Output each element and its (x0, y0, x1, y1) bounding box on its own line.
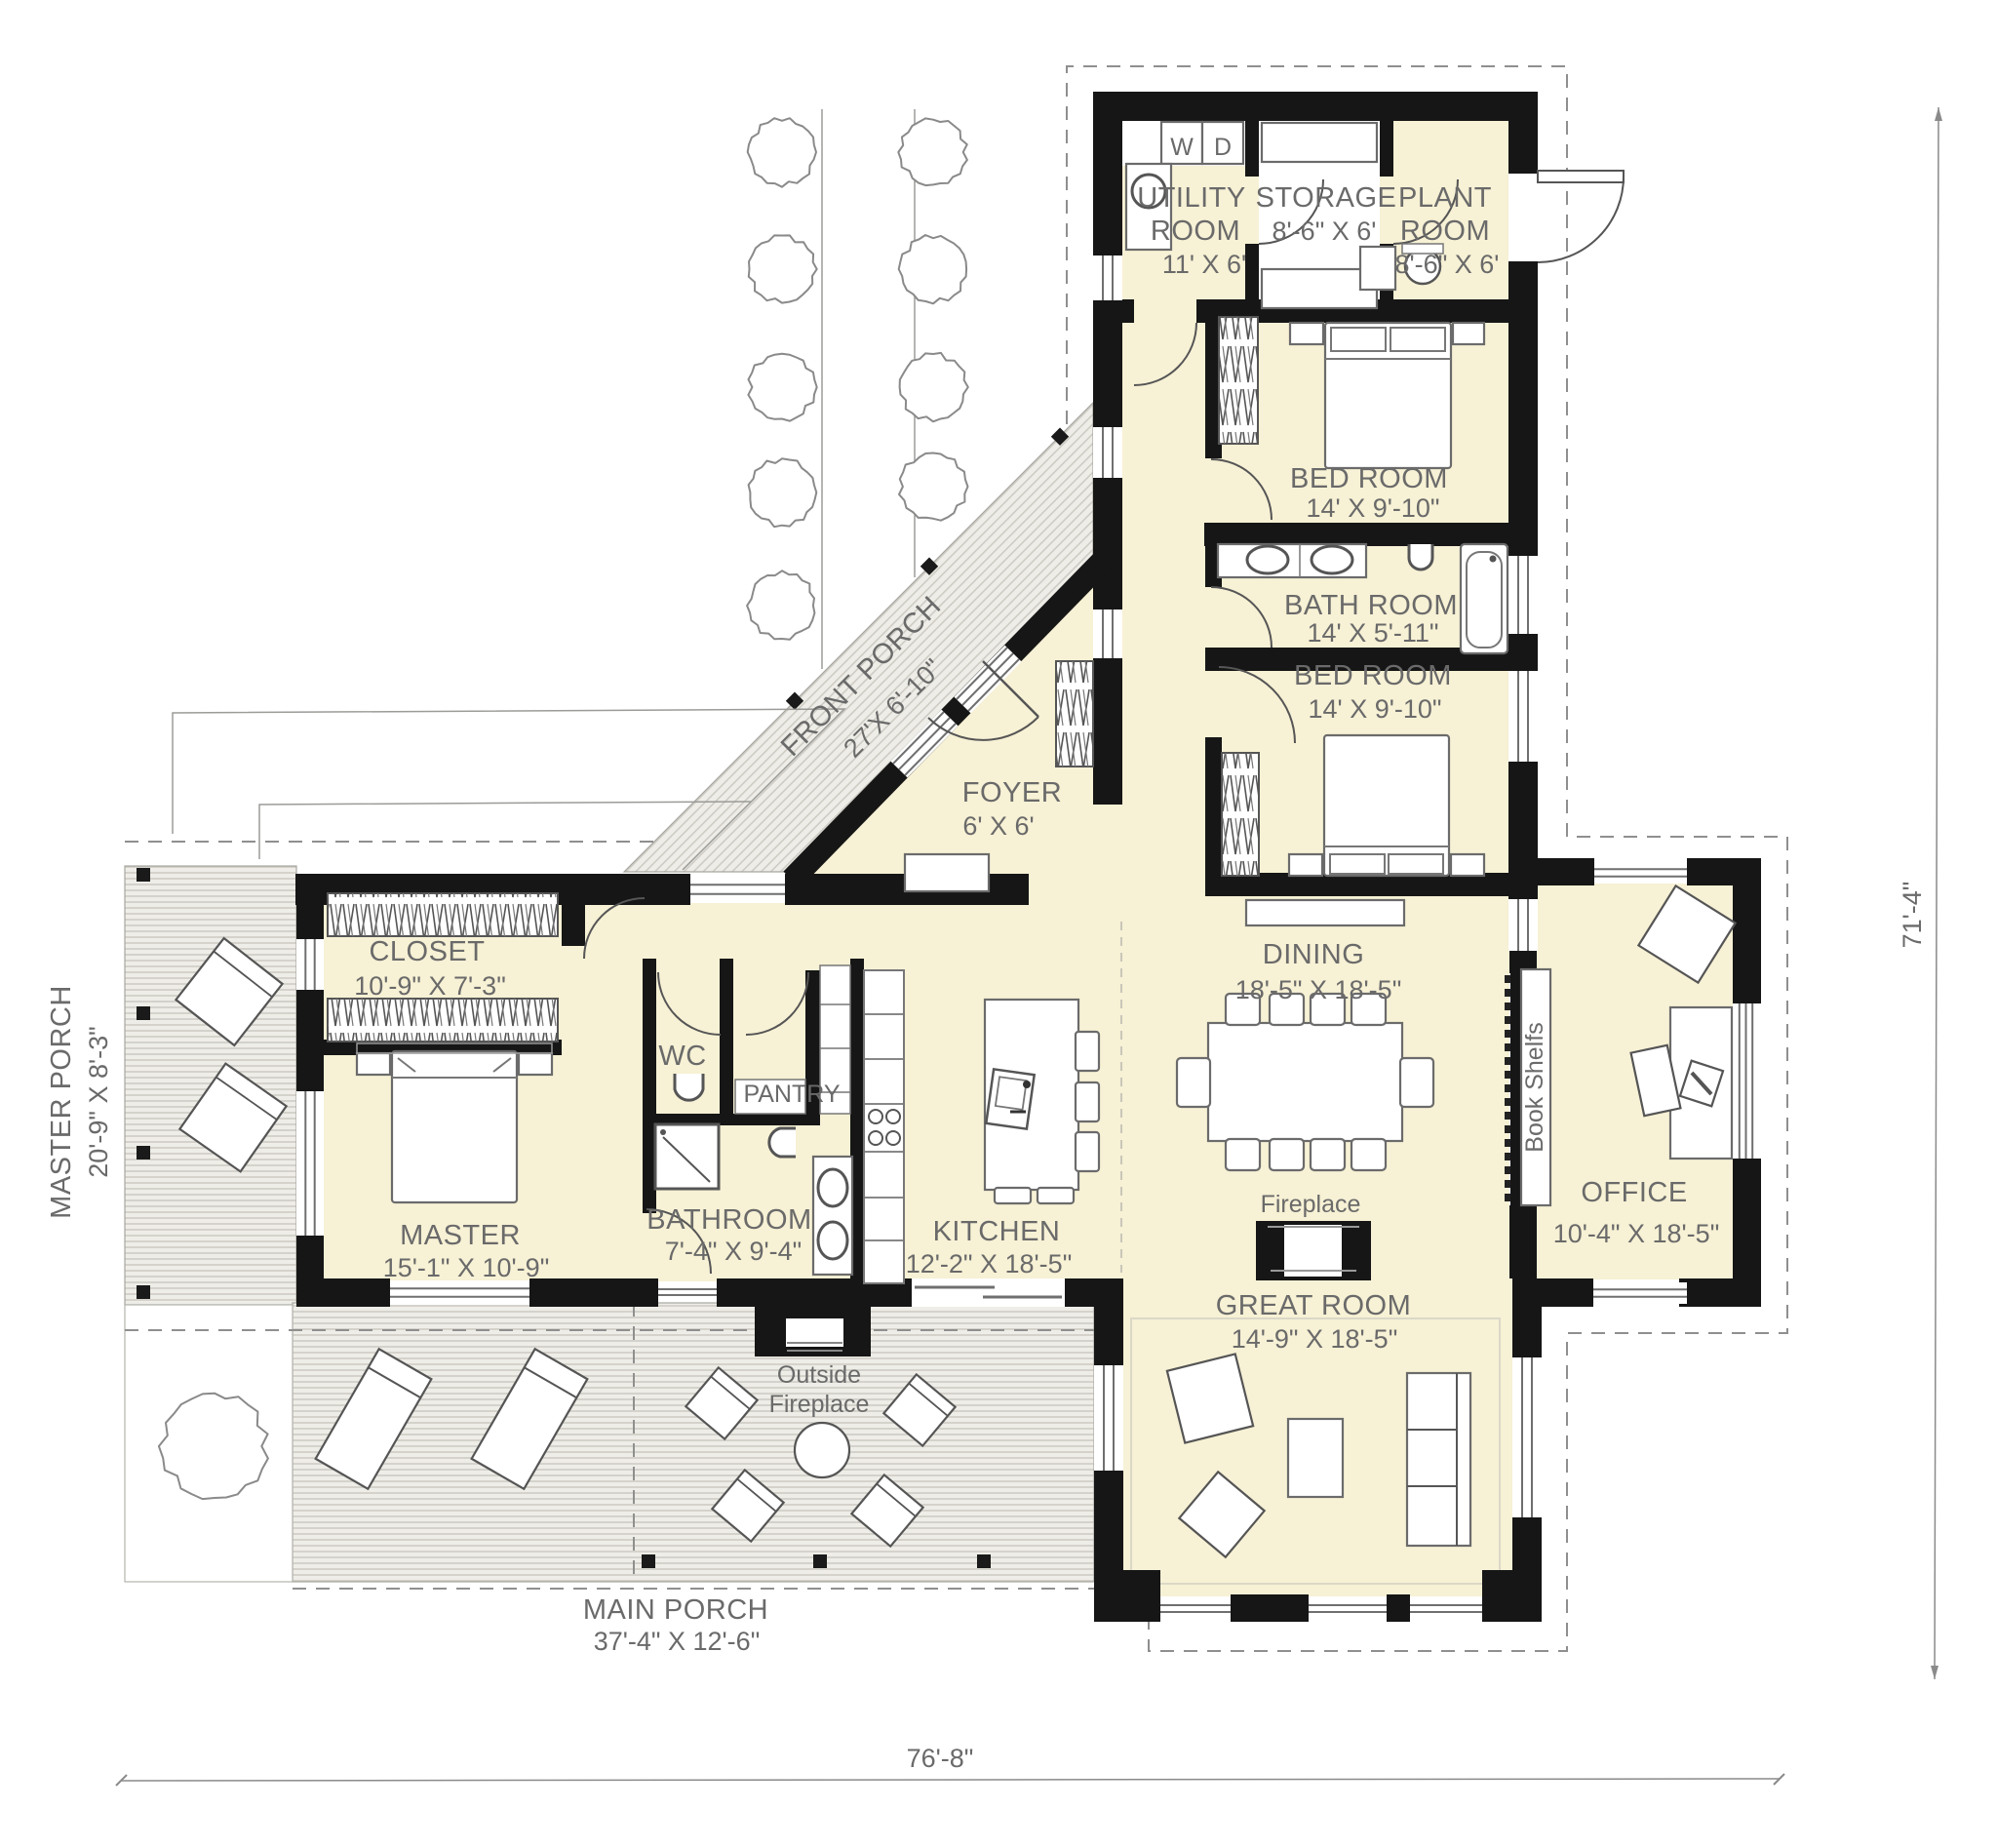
svg-text:PLANT: PLANT (1398, 182, 1492, 214)
svg-text:CLOSET: CLOSET (369, 936, 485, 967)
svg-text:14' X 9'-10": 14' X 9'-10" (1307, 493, 1440, 523)
svg-text:ROOM: ROOM (1151, 216, 1240, 247)
svg-text:11' X 6': 11' X 6' (1162, 250, 1246, 279)
svg-text:8'-6" X 6': 8'-6" X 6' (1273, 216, 1377, 246)
svg-text:Fireplace: Fireplace (1261, 1191, 1361, 1218)
svg-text:MASTER PORCH: MASTER PORCH (46, 985, 77, 1219)
svg-text:15'-1" X 10'-9": 15'-1" X 10'-9" (383, 1253, 550, 1282)
svg-text:20'-9" X 8'-3": 20'-9" X 8'-3" (84, 1026, 113, 1178)
svg-text:MASTER: MASTER (400, 1220, 521, 1251)
svg-text:STORAGE: STORAGE (1256, 182, 1397, 214)
svg-text:14'-9" X 18'-5": 14'-9" X 18'-5" (1232, 1324, 1398, 1354)
svg-text:18'-5" X 18'-5": 18'-5" X 18'-5" (1235, 975, 1402, 1004)
svg-text:ROOM: ROOM (1400, 216, 1490, 247)
svg-text:37'-4" X 12'-6": 37'-4" X 12'-6" (594, 1627, 761, 1656)
svg-text:14' X 5'-11": 14' X 5'-11" (1308, 618, 1439, 648)
svg-text:BED ROOM: BED ROOM (1294, 660, 1452, 691)
svg-text:KITCHEN: KITCHEN (933, 1216, 1061, 1247)
svg-text:BATHROOM: BATHROOM (646, 1204, 811, 1236)
svg-text:BED ROOM: BED ROOM (1290, 463, 1448, 494)
svg-text:OFFICE: OFFICE (1581, 1177, 1687, 1208)
svg-text:D: D (1214, 134, 1232, 161)
svg-text:10'-4" X 18'-5": 10'-4" X 18'-5" (1553, 1219, 1720, 1248)
svg-text:8'-6" X 6': 8'-6" X 6' (1395, 250, 1500, 279)
svg-text:Outside: Outside (777, 1361, 861, 1389)
svg-text:14' X 9'-10": 14' X 9'-10" (1309, 694, 1442, 724)
svg-text:GREAT ROOM: GREAT ROOM (1216, 1290, 1412, 1321)
svg-text:BATH ROOM: BATH ROOM (1284, 590, 1458, 621)
svg-text:7'-4" X 9'-4": 7'-4" X 9'-4" (665, 1237, 803, 1266)
svg-text:6' X 6': 6' X 6' (962, 811, 1034, 841)
svg-text:UTILITY: UTILITY (1137, 182, 1245, 214)
svg-text:71'-4": 71'-4" (1898, 882, 1927, 949)
svg-text:Fireplace: Fireplace (769, 1391, 870, 1418)
svg-text:76'-8": 76'-8" (907, 1744, 974, 1773)
svg-text:10'-9" X 7'-3": 10'-9" X 7'-3" (354, 971, 506, 1001)
svg-text:12'-2" X 18'-5": 12'-2" X 18'-5" (906, 1249, 1073, 1278)
svg-text:DINING: DINING (1263, 939, 1365, 970)
svg-text:W: W (1170, 134, 1194, 161)
svg-text:WC: WC (658, 1041, 706, 1072)
svg-text:Book Shelfs: Book Shelfs (1521, 1022, 1548, 1152)
svg-text:PANTRY: PANTRY (743, 1081, 840, 1108)
svg-text:FOYER: FOYER (962, 777, 1062, 808)
svg-text:MAIN PORCH: MAIN PORCH (583, 1594, 768, 1626)
